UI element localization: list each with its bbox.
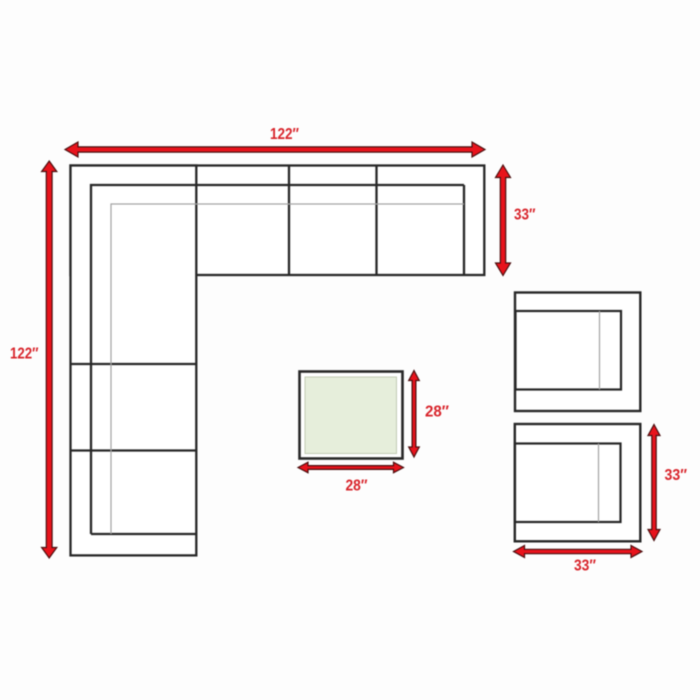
svg-text:122″: 122″ [270, 126, 299, 143]
svg-text:33″: 33″ [665, 467, 688, 484]
svg-text:33″: 33″ [514, 207, 536, 224]
svg-text:122″: 122″ [10, 346, 39, 363]
svg-text:28″: 28″ [346, 478, 369, 495]
svg-text:33″: 33″ [574, 558, 596, 575]
svg-text:28″: 28″ [425, 404, 450, 421]
